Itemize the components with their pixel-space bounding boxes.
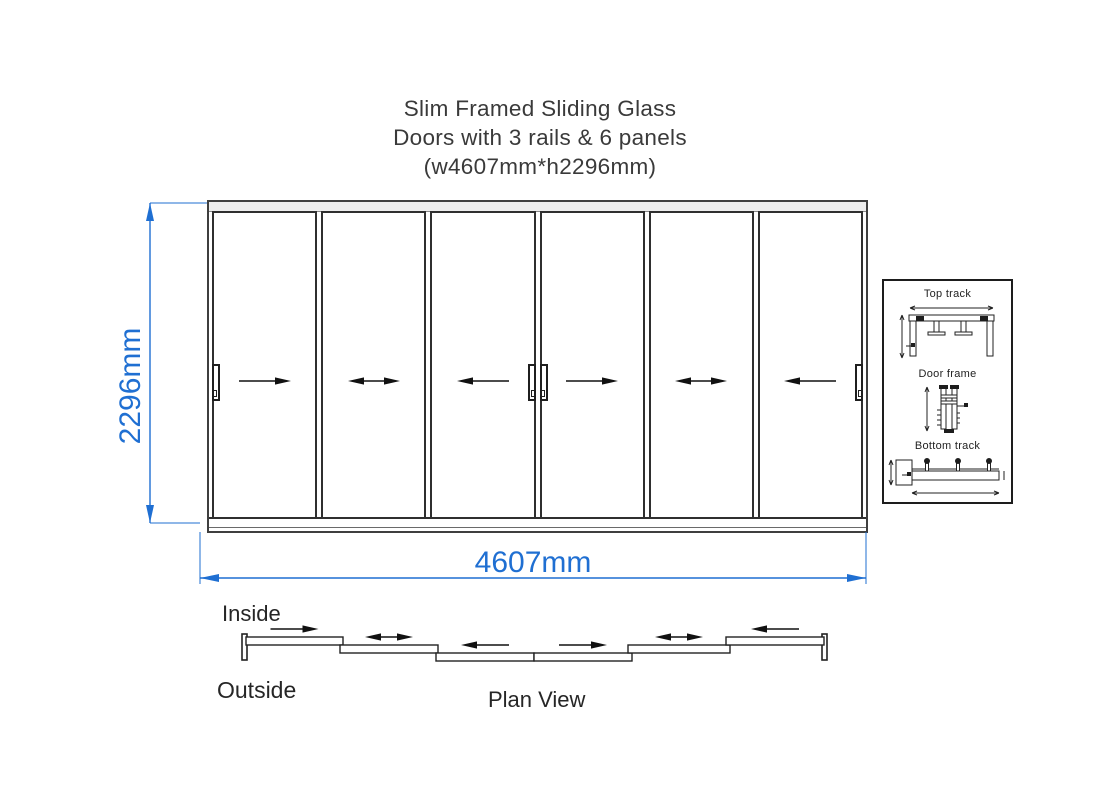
door-panel-6 — [758, 211, 863, 519]
slide-arrow-right-icon — [239, 377, 291, 384]
handle-notch — [858, 390, 862, 397]
width-dimension: 4607mm — [172, 532, 878, 588]
top-track-profile — [896, 302, 1000, 364]
elevation-panels — [209, 211, 866, 519]
bottom-track-bar — [209, 517, 866, 531]
slide-arrow-left-icon — [461, 641, 509, 648]
plan-panel-4 — [534, 653, 632, 661]
profile-details-box: Top track Door frame — [882, 279, 1013, 504]
height-dimension: 2296mm — [116, 190, 208, 538]
handle-notch — [213, 390, 217, 397]
slide-arrow-both-icon — [675, 377, 727, 384]
handle-notch — [531, 390, 535, 397]
door-panel-3 — [430, 211, 535, 519]
panel-2-direction-arrow — [346, 375, 402, 387]
door-handle — [212, 364, 220, 401]
panel-1-direction-arrow — [237, 375, 293, 387]
slide-arrow-left-icon — [751, 625, 799, 632]
slide-arrow-right-icon — [271, 625, 319, 632]
plan-panel-6 — [726, 637, 824, 645]
plan-view-caption: Plan View — [488, 687, 585, 713]
title-line-2: Doors with 3 rails & 6 panels — [280, 123, 800, 152]
panel-5-direction-arrow — [673, 375, 729, 387]
handle-notch — [541, 390, 545, 397]
door-panel-1 — [212, 211, 317, 519]
slide-arrow-left-icon — [457, 377, 509, 384]
bottom-track-profile — [887, 454, 1009, 498]
height-dimension-label: 2296mm — [114, 328, 147, 445]
slide-arrow-both-icon — [365, 633, 413, 640]
slide-arrow-right-icon — [559, 641, 607, 648]
title-line-3: (w4607mm*h2296mm) — [280, 152, 800, 181]
door-handle — [540, 364, 548, 401]
panel-4-direction-arrow — [564, 375, 620, 387]
door-handle — [528, 364, 536, 401]
door-panel-2 — [321, 211, 426, 519]
door-panel-5 — [649, 211, 754, 519]
title-line-1: Slim Framed Sliding Glass — [280, 94, 800, 123]
width-dimension-label: 4607mm — [475, 546, 592, 579]
top-track-label: Top track — [924, 288, 971, 300]
slide-arrow-right-icon — [566, 377, 618, 384]
plan-view-drawing — [228, 618, 840, 676]
door-frame-profile — [921, 382, 975, 436]
slide-arrow-both-icon — [348, 377, 400, 384]
elevation-view — [207, 200, 868, 533]
bottom-track-label: Bottom track — [915, 440, 980, 452]
slide-arrow-left-icon — [784, 377, 836, 384]
plan-panel-3 — [436, 653, 534, 661]
plan-panel-5 — [628, 645, 730, 653]
outside-label: Outside — [217, 677, 296, 704]
drawing-canvas: Slim Framed Sliding Glass Doors with 3 r… — [0, 0, 1120, 789]
plan-panel-1 — [246, 637, 343, 645]
panel-6-direction-arrow — [782, 375, 838, 387]
door-frame-label: Door frame — [918, 368, 976, 380]
door-panel-4 — [540, 211, 645, 519]
slide-arrow-both-icon — [655, 633, 703, 640]
door-handle — [855, 364, 863, 401]
panel-3-direction-arrow — [455, 375, 511, 387]
plan-panel-2 — [340, 645, 438, 653]
drawing-title: Slim Framed Sliding Glass Doors with 3 r… — [280, 94, 800, 181]
